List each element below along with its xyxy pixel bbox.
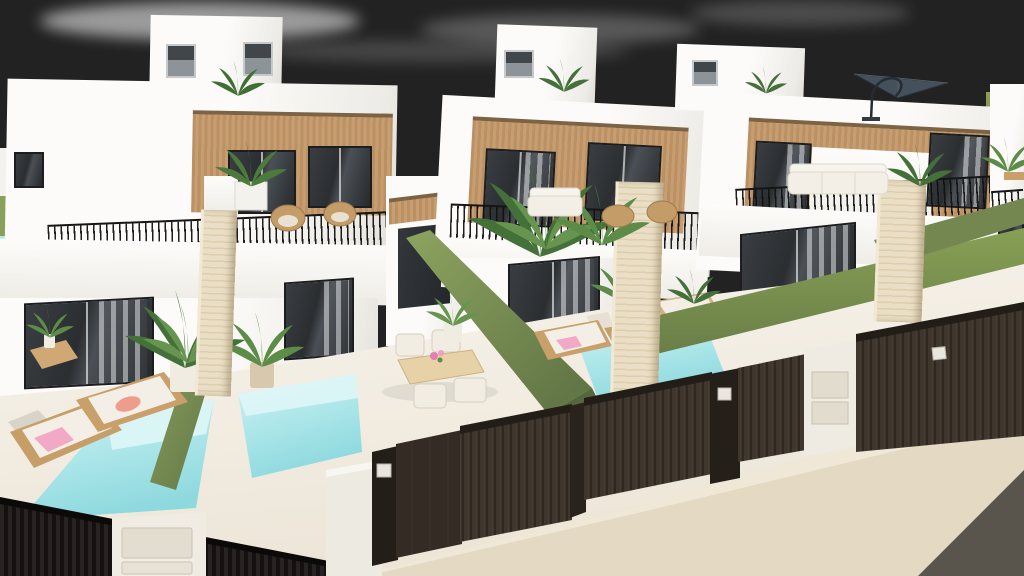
street-layer — [0, 0, 1024, 576]
house-number-plate — [932, 347, 946, 360]
utility-meter-pillar — [804, 340, 858, 456]
slat-fence — [856, 306, 1024, 452]
gate-post — [570, 402, 586, 518]
gate-post — [372, 446, 398, 566]
utility-meter-pillar — [112, 512, 206, 576]
architectural-render — [0, 0, 1024, 576]
gate-post — [710, 368, 740, 484]
slat-fence — [738, 354, 806, 462]
house-number-plate — [377, 464, 391, 477]
house-number-plate — [718, 388, 731, 400]
